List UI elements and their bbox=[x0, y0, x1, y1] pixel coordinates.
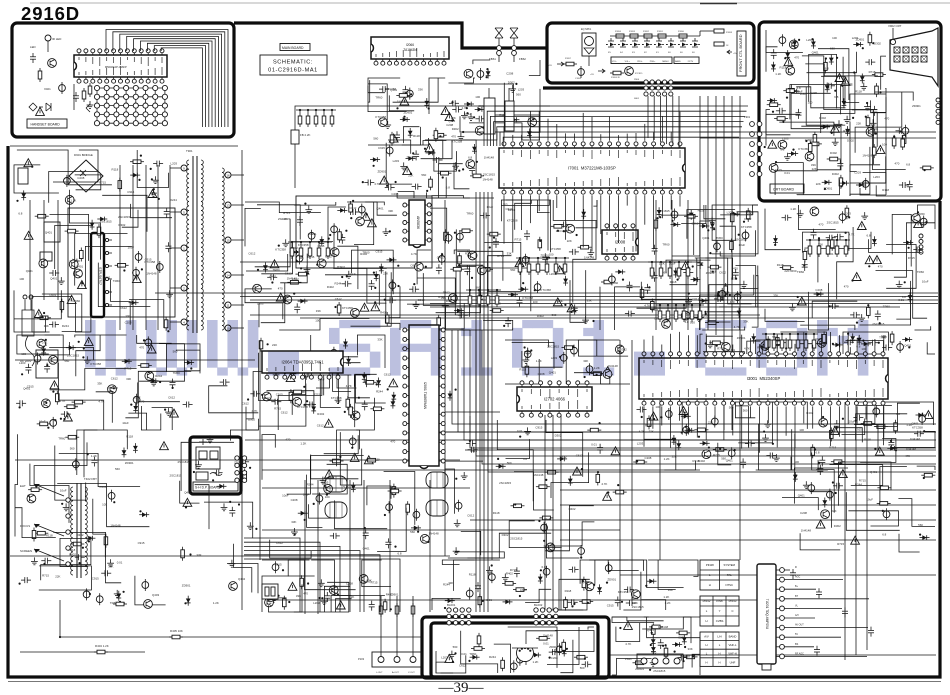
svg-text:10uF: 10uF bbox=[60, 488, 67, 492]
svg-text:C1206: C1206 bbox=[575, 78, 582, 80]
svg-text:470: 470 bbox=[140, 400, 145, 404]
svg-text:560: 560 bbox=[115, 467, 120, 471]
svg-text:R715: R715 bbox=[908, 256, 915, 260]
svg-text:C612: C612 bbox=[350, 206, 357, 210]
svg-text:D302: D302 bbox=[502, 533, 509, 537]
svg-text:TR60: TR60 bbox=[362, 251, 369, 255]
svg-text:NTSC: NTSC bbox=[725, 583, 733, 587]
svg-text:R402: R402 bbox=[443, 290, 450, 294]
svg-text:R715: R715 bbox=[713, 453, 720, 457]
svg-text:470: 470 bbox=[895, 162, 900, 166]
svg-text:560: 560 bbox=[70, 446, 75, 450]
svg-text:PRG-: PRG- bbox=[637, 61, 643, 63]
svg-text:A/V: A/V bbox=[795, 614, 799, 617]
svg-text:C208: C208 bbox=[99, 485, 106, 489]
svg-text:6.8: 6.8 bbox=[446, 185, 450, 189]
svg-text:22/TV: 22/TV bbox=[688, 61, 694, 63]
svg-text:R1263: R1263 bbox=[629, 31, 636, 33]
svg-text:D302: D302 bbox=[119, 223, 126, 227]
svg-text:1N4148: 1N4148 bbox=[801, 528, 812, 532]
svg-text:2SC1815: 2SC1815 bbox=[178, 460, 190, 464]
svg-text:0.01: 0.01 bbox=[517, 429, 523, 433]
svg-text:Q401: Q401 bbox=[582, 580, 589, 584]
svg-text:D302: D302 bbox=[874, 42, 881, 46]
svg-text:4.7K: 4.7K bbox=[849, 232, 855, 236]
svg-text:R118: R118 bbox=[777, 263, 784, 267]
svg-text:T402 FBT: T402 FBT bbox=[84, 477, 97, 481]
svg-text:0.01: 0.01 bbox=[784, 171, 790, 175]
svg-text:I7001 M37221M8-103SP: I7001 M37221M8-103SP bbox=[568, 166, 616, 171]
svg-text:H: H bbox=[705, 660, 707, 664]
svg-text:470: 470 bbox=[851, 338, 856, 342]
svg-text:R1264: R1264 bbox=[615, 31, 622, 33]
svg-text:2SC1815: 2SC1815 bbox=[170, 473, 182, 477]
svg-text:C612: C612 bbox=[335, 297, 342, 301]
svg-text:P901: P901 bbox=[744, 115, 751, 119]
svg-text:2SC1815: 2SC1815 bbox=[735, 238, 747, 242]
svg-text:1.2K: 1.2K bbox=[632, 601, 638, 605]
svg-text:—39—: —39— bbox=[438, 680, 485, 695]
svg-text:SCHEMATIC:: SCHEMATIC: bbox=[273, 60, 313, 66]
svg-text:R1206 2K: R1206 2K bbox=[611, 77, 621, 79]
svg-text:R118: R118 bbox=[46, 533, 53, 537]
svg-text:10uF: 10uF bbox=[39, 420, 46, 424]
svg-text:01-C2916D-MA1: 01-C2916D-MA1 bbox=[268, 68, 318, 74]
svg-text:1.2K: 1.2K bbox=[665, 601, 671, 605]
svg-text:H: H bbox=[709, 583, 711, 587]
svg-text:33K: 33K bbox=[377, 337, 382, 341]
svg-text:560: 560 bbox=[580, 666, 585, 670]
svg-text:100: 100 bbox=[19, 277, 24, 281]
svg-text:33K: 33K bbox=[688, 647, 693, 651]
svg-text:R715: R715 bbox=[510, 568, 517, 572]
svg-text:ZD901: ZD901 bbox=[125, 461, 134, 465]
svg-text:L/H: L/H bbox=[717, 635, 721, 639]
svg-text:560: 560 bbox=[690, 320, 695, 324]
svg-text:ZD901: ZD901 bbox=[404, 111, 413, 115]
svg-text:BAND: BAND bbox=[675, 60, 681, 63]
svg-text:R1260: R1260 bbox=[678, 31, 685, 33]
svg-text:TA1343N: TA1343N bbox=[403, 48, 417, 52]
svg-text:C915: C915 bbox=[276, 393, 283, 397]
svg-text:CRT BOARD: CRT BOARD bbox=[773, 188, 794, 192]
svg-text:6.8: 6.8 bbox=[896, 412, 900, 416]
svg-text:R118: R118 bbox=[780, 66, 787, 70]
svg-text:R715: R715 bbox=[371, 580, 378, 584]
svg-text:Q401: Q401 bbox=[647, 628, 654, 632]
svg-text:H: H bbox=[718, 660, 720, 664]
svg-text:P103: P103 bbox=[358, 657, 365, 661]
svg-text:H: H bbox=[705, 643, 707, 647]
svg-text:R118: R118 bbox=[565, 589, 572, 593]
svg-text:L203: L203 bbox=[873, 175, 880, 179]
svg-text:C208: C208 bbox=[346, 581, 353, 585]
svg-text:ZD901: ZD901 bbox=[378, 170, 387, 174]
svg-text:560: 560 bbox=[721, 457, 726, 461]
svg-text:FRONT CTL BOARD: FRONT CTL BOARD bbox=[738, 34, 743, 72]
svg-text:1N4148: 1N4148 bbox=[397, 100, 408, 104]
svg-text:ZD901: ZD901 bbox=[540, 253, 549, 257]
svg-text:C612: C612 bbox=[384, 373, 391, 377]
svg-text:6.8: 6.8 bbox=[468, 156, 472, 160]
svg-text:I2066: I2066 bbox=[406, 43, 414, 47]
svg-text:22K: 22K bbox=[816, 182, 821, 186]
svg-text:2SC1815: 2SC1815 bbox=[499, 481, 511, 485]
svg-text:R118: R118 bbox=[882, 188, 889, 192]
svg-text:L203: L203 bbox=[518, 88, 525, 92]
svg-text:560: 560 bbox=[75, 299, 80, 303]
svg-text:6.8: 6.8 bbox=[398, 552, 402, 556]
svg-text:D302: D302 bbox=[819, 116, 826, 120]
svg-text:S801: S801 bbox=[634, 98, 640, 100]
svg-text:TR60: TR60 bbox=[797, 270, 804, 274]
svg-text:Q401: Q401 bbox=[103, 276, 110, 280]
svg-text:33K: 33K bbox=[97, 381, 102, 385]
svg-text:C915: C915 bbox=[376, 250, 383, 254]
svg-text:470: 470 bbox=[375, 457, 380, 461]
svg-text:100: 100 bbox=[21, 352, 26, 356]
svg-text:560: 560 bbox=[373, 137, 378, 141]
svg-text:FB 2.2K: FB 2.2K bbox=[300, 133, 311, 137]
svg-text:1.2K: 1.2K bbox=[536, 359, 542, 363]
svg-text:1N4148: 1N4148 bbox=[287, 277, 298, 281]
svg-text:470: 470 bbox=[884, 116, 889, 120]
svg-text:C915: C915 bbox=[275, 563, 282, 567]
svg-text:Q401: Q401 bbox=[726, 459, 733, 463]
svg-text:100: 100 bbox=[282, 217, 287, 221]
svg-text:R118: R118 bbox=[493, 511, 500, 515]
svg-text:KTC358: KTC358 bbox=[741, 225, 752, 229]
svg-text:33K: 33K bbox=[108, 565, 113, 569]
svg-text:R244: R244 bbox=[651, 308, 658, 312]
svg-text:100: 100 bbox=[832, 36, 837, 40]
svg-text:KTC358: KTC358 bbox=[798, 147, 809, 151]
svg-text:D302: D302 bbox=[248, 418, 255, 422]
svg-text:M50462AP-C16FP: M50462AP-C16FP bbox=[105, 65, 127, 69]
svg-text:AN5836: AN5836 bbox=[416, 216, 420, 229]
svg-text:ZD901: ZD901 bbox=[267, 398, 276, 402]
svg-text:BAND: BAND bbox=[729, 635, 737, 639]
svg-text:R402: R402 bbox=[380, 310, 387, 314]
svg-text:L203: L203 bbox=[844, 212, 851, 216]
svg-text:R715: R715 bbox=[837, 542, 844, 546]
svg-text:PAL: PAL bbox=[727, 573, 733, 577]
svg-text:1.2K: 1.2K bbox=[533, 660, 539, 664]
svg-text:C915: C915 bbox=[607, 604, 614, 608]
svg-text:1.2K: 1.2K bbox=[70, 199, 76, 203]
svg-text:22K: 22K bbox=[55, 575, 60, 579]
svg-text:D302: D302 bbox=[620, 347, 627, 351]
svg-text:10uF: 10uF bbox=[922, 280, 929, 284]
svg-text:EQ SPK1: EQ SPK1 bbox=[581, 28, 592, 31]
svg-text:R402: R402 bbox=[569, 507, 576, 511]
svg-text:I3001 M52340SP: I3001 M52340SP bbox=[747, 376, 781, 381]
svg-text:PIN8: PIN8 bbox=[716, 599, 723, 603]
svg-text:1N4148: 1N4148 bbox=[608, 364, 619, 368]
svg-text:0.01: 0.01 bbox=[591, 443, 597, 447]
svg-text:R715: R715 bbox=[515, 237, 522, 241]
svg-text:22K: 22K bbox=[272, 343, 277, 347]
svg-text:C612: C612 bbox=[520, 588, 527, 592]
svg-text:10uF: 10uF bbox=[282, 494, 289, 498]
svg-text:L203: L203 bbox=[441, 655, 448, 659]
svg-text:100: 100 bbox=[475, 95, 480, 99]
svg-text:33K: 33K bbox=[649, 429, 654, 433]
svg-text:R118: R118 bbox=[698, 208, 705, 212]
svg-text:TR60: TR60 bbox=[375, 95, 382, 99]
svg-text:0.01: 0.01 bbox=[542, 565, 548, 569]
svg-text:PIN48: PIN48 bbox=[706, 563, 714, 567]
svg-text:100: 100 bbox=[315, 318, 320, 322]
svg-text:13: 13 bbox=[226, 203, 230, 207]
svg-text:T901: T901 bbox=[186, 149, 193, 153]
svg-text:R402: R402 bbox=[327, 285, 334, 289]
svg-text:22K: 22K bbox=[856, 121, 861, 125]
svg-text:Q401: Q401 bbox=[377, 207, 384, 211]
svg-text:C915: C915 bbox=[535, 426, 542, 430]
svg-text:KTC358: KTC358 bbox=[550, 247, 561, 251]
svg-text:ZD901: ZD901 bbox=[406, 156, 415, 160]
svg-text:TR60: TR60 bbox=[611, 281, 618, 285]
svg-text:560: 560 bbox=[918, 523, 923, 527]
svg-text:2SC1815: 2SC1815 bbox=[100, 220, 112, 224]
svg-text:5V: 5V bbox=[795, 633, 798, 636]
svg-text:33K: 33K bbox=[668, 588, 673, 592]
svg-text:R244: R244 bbox=[489, 655, 496, 659]
svg-text:6.8: 6.8 bbox=[523, 457, 527, 461]
svg-text:2SC1815: 2SC1815 bbox=[556, 229, 568, 233]
svg-text:TR60: TR60 bbox=[466, 212, 473, 216]
svg-text:R715: R715 bbox=[304, 403, 311, 407]
svg-text:6.8: 6.8 bbox=[906, 162, 910, 166]
svg-text:C612: C612 bbox=[467, 514, 474, 518]
svg-text:C612: C612 bbox=[459, 664, 466, 668]
svg-text:R244: R244 bbox=[376, 390, 383, 394]
svg-text:Q401: Q401 bbox=[76, 265, 83, 269]
svg-text:KTC358: KTC358 bbox=[375, 115, 386, 119]
svg-text:6.8: 6.8 bbox=[780, 147, 784, 151]
svg-text:R715: R715 bbox=[859, 478, 866, 482]
svg-text:33K: 33K bbox=[583, 359, 588, 363]
svg-text:ZD901: ZD901 bbox=[912, 104, 921, 108]
svg-text:1.2K: 1.2K bbox=[790, 207, 796, 211]
svg-text:1N4148: 1N4148 bbox=[146, 271, 157, 275]
svg-text:C208: C208 bbox=[800, 511, 807, 515]
svg-text:4.7K: 4.7K bbox=[252, 409, 258, 413]
svg-text:TR60: TR60 bbox=[917, 270, 924, 274]
svg-text:C915: C915 bbox=[443, 305, 450, 309]
svg-text:C208: C208 bbox=[678, 636, 685, 640]
svg-text:D302: D302 bbox=[744, 217, 751, 221]
svg-text:2SC1815: 2SC1815 bbox=[827, 221, 839, 225]
svg-text:100: 100 bbox=[549, 253, 554, 257]
svg-text:ZD901: ZD901 bbox=[182, 584, 191, 588]
svg-text:ZD901: ZD901 bbox=[308, 232, 317, 236]
svg-text:100: 100 bbox=[102, 503, 107, 507]
svg-text:10uF: 10uF bbox=[739, 243, 746, 247]
svg-text:0.01: 0.01 bbox=[543, 642, 549, 646]
svg-text:Y: Y bbox=[719, 609, 721, 613]
svg-text:KTC358: KTC358 bbox=[507, 218, 518, 222]
svg-text:R402: R402 bbox=[386, 592, 393, 596]
svg-text:R1208: R1208 bbox=[726, 32, 733, 34]
svg-text:D302: D302 bbox=[452, 127, 459, 131]
svg-text:22K: 22K bbox=[812, 167, 817, 171]
svg-text:R244: R244 bbox=[62, 324, 69, 328]
svg-text:C208: C208 bbox=[446, 123, 453, 127]
svg-text:4.7K: 4.7K bbox=[411, 252, 417, 256]
svg-text:Q401: Q401 bbox=[45, 231, 52, 235]
svg-text:2SC1815: 2SC1815 bbox=[658, 209, 670, 213]
svg-text:2SC1815: 2SC1815 bbox=[67, 354, 79, 358]
svg-text:KTC358: KTC358 bbox=[275, 248, 286, 252]
svg-text:1.2K: 1.2K bbox=[663, 595, 669, 599]
svg-text:560: 560 bbox=[453, 645, 458, 649]
svg-text:100: 100 bbox=[325, 495, 330, 499]
svg-text:C915: C915 bbox=[318, 244, 325, 248]
svg-text:C208: C208 bbox=[645, 456, 652, 460]
svg-text:470: 470 bbox=[878, 264, 883, 268]
svg-text:C612: C612 bbox=[120, 306, 127, 310]
svg-text:PRG+: PRG+ bbox=[650, 61, 657, 63]
svg-text:Q401: Q401 bbox=[812, 51, 819, 55]
svg-text:33K: 33K bbox=[418, 88, 423, 92]
svg-text:D302: D302 bbox=[847, 138, 854, 142]
svg-text:R715: R715 bbox=[528, 117, 535, 121]
svg-text:10uF: 10uF bbox=[122, 421, 129, 425]
svg-text:100: 100 bbox=[882, 143, 887, 147]
svg-text:ZD901: ZD901 bbox=[870, 127, 879, 131]
svg-text:TR60: TR60 bbox=[789, 269, 796, 273]
svg-text:4.7K: 4.7K bbox=[346, 384, 352, 388]
svg-text:LED: LED bbox=[30, 45, 36, 49]
svg-text:TR60: TR60 bbox=[58, 437, 65, 441]
svg-text:14: 14 bbox=[226, 273, 230, 277]
svg-text:D302: D302 bbox=[747, 212, 754, 216]
svg-text:6.8: 6.8 bbox=[18, 212, 22, 216]
svg-text:C915: C915 bbox=[775, 168, 782, 172]
svg-text:C208: C208 bbox=[815, 288, 822, 292]
svg-text:1N4148: 1N4148 bbox=[110, 523, 121, 527]
svg-text:10uF: 10uF bbox=[303, 492, 310, 496]
svg-text:R244: R244 bbox=[307, 483, 314, 487]
svg-text:TR60: TR60 bbox=[469, 652, 476, 656]
svg-text:TR60: TR60 bbox=[918, 212, 925, 216]
svg-text:Q401: Q401 bbox=[904, 343, 911, 347]
svg-text:+5V: +5V bbox=[548, 65, 552, 67]
svg-text:15: 15 bbox=[226, 238, 230, 242]
svg-text:560: 560 bbox=[830, 47, 835, 51]
svg-text:C612: C612 bbox=[276, 541, 283, 545]
svg-text:C612: C612 bbox=[285, 271, 292, 275]
svg-text:FB62: FB62 bbox=[519, 57, 526, 61]
svg-text:D302: D302 bbox=[77, 533, 84, 537]
svg-text:Q403: Q403 bbox=[152, 593, 159, 597]
svg-text:560: 560 bbox=[73, 404, 78, 408]
svg-text:V-OUT: V-OUT bbox=[408, 672, 415, 674]
svg-text:4.7K: 4.7K bbox=[374, 182, 380, 186]
svg-text:Q401: Q401 bbox=[184, 491, 191, 495]
svg-text:C612: C612 bbox=[719, 270, 726, 274]
svg-text:L203: L203 bbox=[637, 441, 644, 445]
svg-text:2SC1815: 2SC1815 bbox=[483, 173, 495, 177]
svg-text:470: 470 bbox=[844, 285, 849, 289]
svg-text:R715: R715 bbox=[42, 574, 49, 578]
svg-text:R1261: R1261 bbox=[657, 31, 664, 33]
svg-text:L203: L203 bbox=[393, 159, 400, 163]
svg-text:R402: R402 bbox=[698, 459, 705, 463]
svg-text:Q401: Q401 bbox=[50, 277, 57, 281]
svg-text:4.7K: 4.7K bbox=[744, 347, 750, 351]
svg-text:470: 470 bbox=[310, 402, 315, 406]
svg-text:560: 560 bbox=[410, 530, 415, 534]
svg-text:R715: R715 bbox=[313, 393, 320, 397]
svg-text:R118: R118 bbox=[670, 280, 677, 284]
svg-text:1N4148: 1N4148 bbox=[862, 153, 873, 157]
svg-text:PIN43: PIN43 bbox=[729, 599, 737, 603]
svg-text:ZD901: ZD901 bbox=[607, 578, 616, 582]
svg-text:I2001 TA8659AN: I2001 TA8659AN bbox=[423, 382, 427, 410]
svg-text:C208: C208 bbox=[805, 138, 812, 142]
svg-text:R1267: R1267 bbox=[565, 58, 572, 60]
svg-text:6.8: 6.8 bbox=[882, 532, 886, 536]
svg-text:560: 560 bbox=[843, 74, 848, 78]
svg-text:4.7K: 4.7K bbox=[59, 399, 65, 403]
svg-text:2916D: 2916D bbox=[21, 3, 80, 24]
svg-text:C208: C208 bbox=[810, 91, 817, 95]
svg-text:TR60: TR60 bbox=[113, 279, 120, 283]
svg-text:33K: 33K bbox=[507, 251, 512, 255]
svg-text:+5V: +5V bbox=[590, 74, 594, 76]
svg-text:KTC358: KTC358 bbox=[841, 82, 852, 86]
svg-text:R244: R244 bbox=[170, 198, 177, 202]
svg-text:4.7K: 4.7K bbox=[625, 642, 631, 646]
svg-text:P804: P804 bbox=[634, 79, 640, 81]
svg-text:0.01: 0.01 bbox=[117, 561, 123, 565]
svg-text:R715: R715 bbox=[717, 347, 724, 351]
svg-text:C915: C915 bbox=[127, 190, 134, 194]
svg-text:IR LED: IR LED bbox=[52, 37, 61, 41]
svg-text:R715: R715 bbox=[283, 211, 290, 215]
svg-text:1N4148: 1N4148 bbox=[658, 625, 669, 629]
svg-text:R244: R244 bbox=[335, 282, 342, 286]
svg-text:H: H bbox=[705, 619, 707, 623]
svg-text:CVBS: CVBS bbox=[716, 619, 724, 623]
svg-text:2SC1815: 2SC1815 bbox=[632, 605, 644, 609]
svg-text:D901 BRIDGE: D901 BRIDGE bbox=[74, 153, 93, 157]
svg-text:560: 560 bbox=[729, 406, 734, 410]
svg-text:22K: 22K bbox=[383, 272, 388, 276]
svg-text:L203: L203 bbox=[855, 171, 862, 175]
svg-text:R715: R715 bbox=[438, 295, 445, 299]
svg-text:C915: C915 bbox=[138, 541, 145, 545]
svg-text:33K: 33K bbox=[291, 520, 296, 524]
svg-text:1N4148: 1N4148 bbox=[484, 155, 495, 159]
svg-text:0.01: 0.01 bbox=[42, 341, 48, 345]
svg-text:Q401: Q401 bbox=[702, 236, 709, 240]
svg-text:KTC358: KTC358 bbox=[331, 396, 342, 400]
svg-text:1.2K: 1.2K bbox=[775, 72, 781, 76]
svg-text:470: 470 bbox=[286, 438, 291, 442]
svg-text:RF AGC: RF AGC bbox=[795, 652, 804, 655]
svg-text:1.2K: 1.2K bbox=[300, 442, 306, 446]
svg-text:ZD901: ZD901 bbox=[824, 187, 833, 191]
svg-text:I2702 4066: I2702 4066 bbox=[544, 397, 566, 402]
svg-text:BL002: BL002 bbox=[534, 603, 543, 607]
svg-text:R715: R715 bbox=[869, 70, 876, 74]
svg-text:2SC1815: 2SC1815 bbox=[872, 322, 884, 326]
svg-text:L203: L203 bbox=[727, 211, 734, 215]
